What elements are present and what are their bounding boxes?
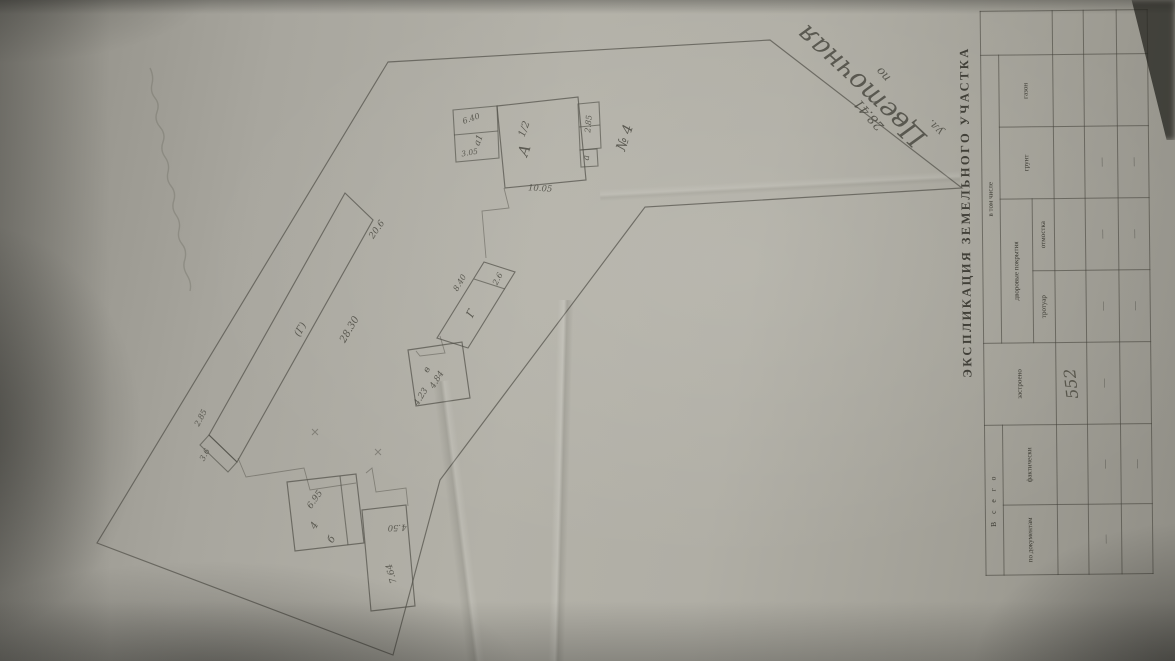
- barn: 6.95 4 б: [287, 474, 364, 551]
- cell: [1117, 54, 1149, 126]
- cell: —: [1084, 126, 1118, 198]
- barn-inner-wall: [340, 476, 348, 545]
- header-by-documents: по докумен­там: [1003, 505, 1058, 576]
- fence-line-4: [416, 336, 445, 356]
- cell: —: [1085, 198, 1119, 270]
- cell: [1056, 424, 1088, 504]
- cell: —: [1087, 424, 1121, 504]
- header-lawn: газон: [999, 55, 1054, 128]
- cell: —: [1088, 504, 1122, 574]
- house-number-label: № 4: [613, 123, 637, 154]
- header-soil: грунт: [999, 127, 1054, 200]
- header-actual: фактически: [1002, 425, 1057, 506]
- barn-letter: б: [326, 534, 339, 546]
- fence-line-2: [366, 468, 408, 506]
- fence-tick-1: [312, 429, 318, 435]
- fence-tick-2: [375, 449, 381, 455]
- cell: [1054, 198, 1086, 270]
- cell: [1083, 10, 1116, 54]
- house-storeys-label: 1/2: [517, 120, 533, 139]
- narrow-shed-top-dim: 4.50: [387, 522, 408, 533]
- cell-built-value: 552: [1056, 342, 1088, 424]
- cell: [1116, 10, 1147, 54]
- annex-left-letter: а1: [473, 133, 486, 147]
- cell: —: [1120, 424, 1152, 504]
- cell: —: [1086, 270, 1120, 342]
- main-house: А 1/2 № 4 10.05 6.40 а1 3.05 2.85 а: [453, 97, 637, 195]
- photographed-site-plan-document: А 1/2 № 4 10.05 6.40 а1 3.05 2.85 а (Г) …: [0, 0, 1175, 661]
- barn-dim: 6.95: [306, 489, 326, 511]
- cell: —: [1119, 270, 1151, 342]
- street-annotations: Цветочная ул. 28.41 по: [790, 18, 946, 154]
- explication-table: В с е г о застроено в том числе по докум…: [980, 9, 1154, 576]
- cell: —: [1118, 198, 1150, 270]
- cell: [1055, 270, 1087, 342]
- house-dim-bottom: 10.05: [528, 183, 553, 194]
- annex-left-dim2: 3.05: [461, 147, 479, 159]
- header-sidewalk: тротуар: [1033, 271, 1056, 343]
- long-shed-end-dim3: 3.6: [198, 447, 212, 462]
- fence-line-1: [238, 458, 356, 490]
- table-row: — — — —: [1116, 10, 1153, 574]
- long-shed-end-dim: 20.6: [367, 219, 387, 242]
- barn-dim2: 4: [308, 520, 321, 532]
- narrow-shed-outline: [362, 505, 415, 611]
- marginal-pencil-note: [150, 68, 191, 291]
- main-house-outline: [497, 97, 586, 188]
- narrow-shed: 4.50 7.64: [362, 505, 415, 611]
- middle-shed-dim: 8.40: [451, 273, 468, 293]
- long-shed-length-dim: 28.30: [337, 314, 362, 346]
- annex-right-dim: 2.85: [583, 115, 594, 135]
- annex-left-dim: 6.40: [461, 111, 481, 126]
- header-blind-area: отмостка: [1032, 199, 1055, 271]
- long-shed: (Г) 28.30 20.6 2.85 3.6: [192, 193, 387, 472]
- cell: —: [1117, 126, 1149, 198]
- header-pavings-group: дворовые покрытия: [1000, 199, 1034, 343]
- street-name-label: Цветочная: [790, 18, 933, 154]
- middle-shed: 2.6 8.40 Г: [437, 262, 515, 348]
- header-total-group: В с е г о: [984, 425, 1004, 575]
- cell: [1084, 54, 1118, 126]
- document-sheet-bottom: ЭКСПЛИКАЦИЯ ЗЕМЕЛЬНОГО УЧАСТКА В с е г о…: [947, 0, 1175, 661]
- square-shed-dim2: 4.23: [412, 386, 431, 408]
- long-shed-letter: (Г): [292, 321, 309, 339]
- cell: [1057, 504, 1089, 574]
- header-built: застроено: [984, 343, 1057, 426]
- annex-right-letter: а: [582, 155, 592, 161]
- parcel-boundary: [97, 40, 962, 655]
- narrow-shed-side-dim: 7.64: [385, 562, 400, 584]
- cell: [1052, 10, 1083, 54]
- cell: [1053, 126, 1085, 198]
- cell: [1121, 504, 1153, 574]
- cell: [1120, 342, 1152, 424]
- square-shed-letter: в: [422, 365, 433, 375]
- long-shed-end-dim2: 2.85: [192, 408, 209, 429]
- cell: —: [1087, 342, 1121, 424]
- header-stub-column: [980, 11, 1052, 56]
- house-letter-label: А: [514, 142, 535, 160]
- middle-shed-letter: Г: [463, 307, 479, 321]
- cell: [1053, 54, 1085, 126]
- fence-line-3: [482, 188, 509, 258]
- explication-title: ЭКСПЛИКАЦИЯ ЗЕМЕЛЬНОГО УЧАСТКА: [957, 12, 976, 412]
- explication-block: ЭКСПЛИКАЦИЯ ЗЕМЕЛЬНОГО УЧАСТКА В с е г о…: [950, 0, 1175, 661]
